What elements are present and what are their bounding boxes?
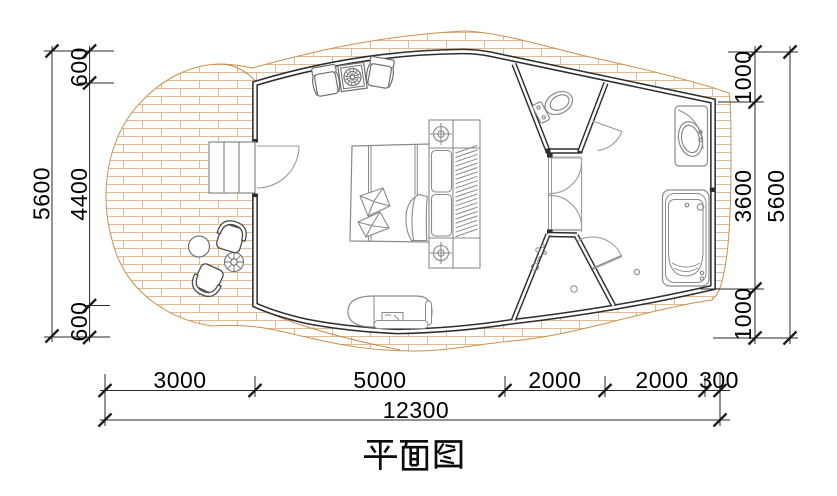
svg-text:600: 600 bbox=[66, 302, 92, 342]
svg-text:1000: 1000 bbox=[730, 50, 756, 103]
svg-text:5600: 5600 bbox=[763, 169, 789, 222]
svg-text:2000: 2000 bbox=[635, 367, 688, 393]
svg-text:300: 300 bbox=[699, 367, 739, 393]
svg-text:5000: 5000 bbox=[353, 367, 406, 393]
svg-text:1000: 1000 bbox=[730, 287, 756, 340]
svg-text:4400: 4400 bbox=[66, 167, 92, 220]
svg-text:600: 600 bbox=[66, 47, 92, 87]
svg-text:5600: 5600 bbox=[29, 167, 55, 220]
svg-text:3600: 3600 bbox=[730, 169, 756, 222]
svg-text:2000: 2000 bbox=[528, 367, 581, 393]
svg-text:3000: 3000 bbox=[153, 367, 206, 393]
svg-text:12300: 12300 bbox=[383, 397, 449, 423]
